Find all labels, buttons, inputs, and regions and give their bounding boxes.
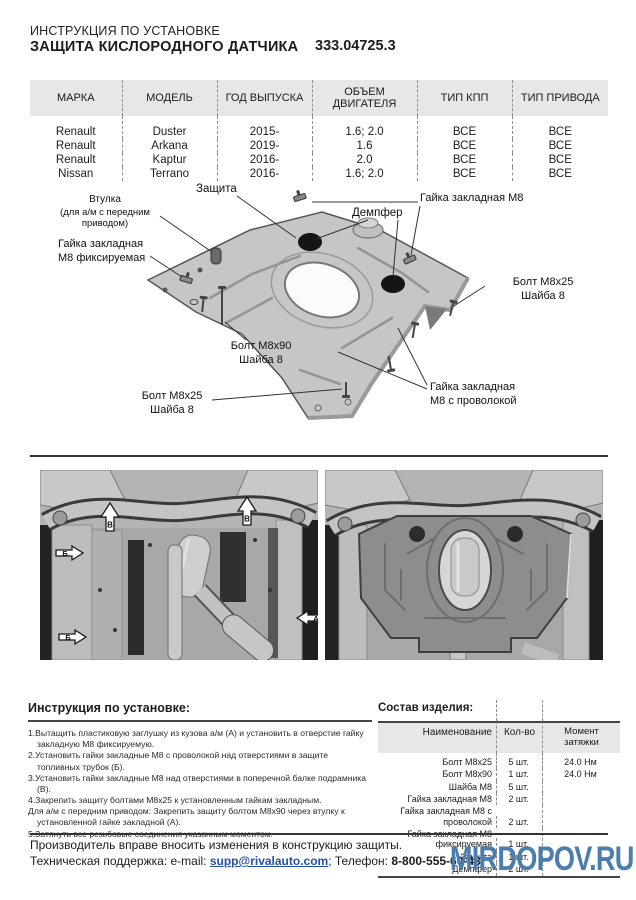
cell-brand: Renault: [30, 139, 122, 153]
photo-underbody-before: В В Б Б А: [40, 470, 318, 660]
support-line: Техническая поддержка: e-mail: supp@riva…: [30, 854, 481, 868]
part-qty: 1 шт.: [496, 768, 542, 780]
support-label: Техническая поддержка: e-mail:: [30, 854, 210, 868]
install-step: Для а/м с передним приводом: Закрепить з…: [28, 806, 372, 828]
vehicle-row: Renault Kaptur 2016- 2.0 ВСЕ ВСЕ: [30, 153, 608, 167]
label-shield: Защита: [196, 182, 237, 196]
part-qty: 5 шт.: [496, 781, 542, 793]
part-name: Болт М8х25: [378, 753, 496, 768]
cell-year: 2016-: [217, 153, 312, 167]
svg-text:В: В: [244, 515, 250, 524]
label-bushing: Втулка (для а/м с передним приводом): [38, 194, 172, 230]
label-nut-wire: Гайка закладная М8 с проволокой: [430, 381, 517, 409]
part-torque: [542, 781, 620, 793]
cell-brand: Renault: [30, 116, 122, 139]
doc-subtitle: ИНСТРУКЦИЯ ПО УСТАНОВКЕ: [30, 24, 220, 38]
label-nut-fixed-line2: М8 фиксируемая: [58, 252, 145, 266]
install-title: Инструкция по установке:: [28, 701, 372, 722]
cell-gearbox: ВСЕ: [417, 139, 512, 153]
col-gearbox: ТИП КПП: [417, 80, 512, 116]
vehicle-row: Renault Duster 2015- 1.6; 2.0 ВСЕ ВСЕ: [30, 116, 608, 139]
phone-label: ; Телефон:: [328, 854, 391, 868]
col-year: ГОД ВЫПУСКА: [217, 80, 312, 116]
vehicle-table-header-row: МАРКА МОДЕЛЬ ГОД ВЫПУСКА ОБЪЕМ ДВИГАТЕЛЯ…: [30, 80, 608, 116]
label-nut-wire-line1: Гайка закладная: [430, 381, 515, 393]
part-qty: 5 шт.: [496, 753, 542, 768]
parts-title-spacer: [542, 700, 620, 721]
svg-text:Б: Б: [62, 549, 68, 558]
install-step: 2.Установить гайки закладные М8 с провол…: [28, 750, 372, 772]
cell-gearbox: ВСЕ: [417, 153, 512, 167]
cell-year: 2015-: [217, 116, 312, 139]
doc-title: ЗАЩИТА КИСЛОРОДНОГО ДАТЧИКА: [30, 39, 298, 55]
cell-drive: ВСЕ: [512, 139, 608, 153]
label-washer90-line2: Шайба 8: [222, 354, 300, 368]
cell-model: Duster: [122, 116, 217, 139]
svg-text:Б: Б: [65, 633, 71, 642]
cell-model: Kaptur: [122, 153, 217, 167]
manufacturer-note: Производитель вправе вносить изменения в…: [30, 838, 402, 852]
damper-right: [381, 275, 405, 293]
install-step: 1.Вытащить пластиковую заглушку из кузов…: [28, 728, 372, 750]
part-name: Шайба М8: [378, 781, 496, 793]
col-engine: ОБЪЕМ ДВИГАТЕЛЯ: [312, 80, 417, 116]
label-washerb-line2: Шайба 8: [132, 404, 212, 418]
cell-drive: ВСЕ: [512, 116, 608, 139]
part-number: 333.04725.3: [315, 38, 396, 54]
section-divider: [30, 455, 608, 457]
watermark: MIRDOPOV.RU: [450, 840, 634, 879]
part-name: Гайка закладная М8: [378, 793, 496, 805]
cell-model: Arkana: [122, 139, 217, 153]
cell-gearbox: ВСЕ: [417, 116, 512, 139]
part-qty: 2 шт.: [496, 816, 542, 828]
label-bolt-m8x25-right: Болт М8х25 Шайба 8: [487, 276, 599, 304]
col-brand: МАРКА: [30, 80, 122, 116]
vehicle-table: МАРКА МОДЕЛЬ ГОД ВЫПУСКА ОБЪЕМ ДВИГАТЕЛЯ…: [30, 80, 608, 181]
install-step: 4.Закрепить защиту болтами М8х25 к устан…: [28, 795, 372, 806]
cell-engine: 1.6: [312, 139, 417, 153]
support-email-link[interactable]: supp@rivalauto.com: [210, 854, 328, 868]
label-nut-fixed-line1: Гайка закладная: [58, 238, 143, 250]
label-bushing-line2: (для а/м с передним приводом): [38, 207, 172, 231]
nut-m8-top: [292, 189, 307, 202]
part-name: Гайка закладная М8 с проволокой: [378, 805, 496, 828]
label-nut-m8: Гайка закладная М8: [420, 192, 523, 206]
label-nut-wire-line2: М8 с проволокой: [430, 395, 517, 409]
parts-title-spacer: [496, 700, 542, 721]
parts-col-qty: Кол-во: [496, 721, 542, 753]
part-torque: 24.0 Нм: [542, 753, 620, 768]
label-bolt90-line1: Болт М8х90: [231, 340, 292, 352]
install-step: 3.Установить гайки закладные М8 над отве…: [28, 773, 372, 795]
part-qty: 2 шт.: [496, 793, 542, 805]
part-name: Болт М8х90: [378, 768, 496, 780]
parts-col-name: Наименование: [378, 721, 496, 753]
svg-text:В: В: [107, 521, 113, 530]
exploded-diagram: Защита Втулка (для а/м с передним привод…: [0, 178, 636, 455]
label-nut-fixed: Гайка закладная М8 фиксируемая: [58, 238, 145, 266]
damper-left: [298, 233, 322, 251]
vehicle-row: Renault Arkana 2019- 1.6 ВСЕ ВСЕ: [30, 139, 608, 153]
cell-engine: 2.0: [312, 153, 417, 167]
label-bolt-line1: Болт М8х25: [513, 276, 574, 288]
cell-brand: Renault: [30, 153, 122, 167]
photo-underbody-after: [325, 470, 603, 660]
label-bolt-m8x25-bottom: Болт М8х25 Шайба 8: [132, 390, 212, 418]
cell-engine: 1.6; 2.0: [312, 116, 417, 139]
parts-col-torque: Момент затяжки: [542, 721, 620, 753]
label-bolt-m8x90: Болт М8х90 Шайба 8: [222, 340, 300, 368]
col-model: МОДЕЛЬ: [122, 80, 217, 116]
part-torque: [542, 805, 620, 828]
label-damper: Демпфер: [352, 206, 403, 220]
part-torque: [542, 793, 620, 805]
svg-text:А: А: [313, 614, 318, 623]
cell-year: 2019-: [217, 139, 312, 153]
col-drive: ТИП ПРИВОДА: [512, 80, 608, 116]
label-boltb-line1: Болт М8х25: [142, 390, 203, 402]
parts-title: Состав изделия:: [378, 700, 496, 721]
label-washer-line2: Шайба 8: [487, 290, 599, 304]
footer-divider: [30, 833, 608, 835]
part-torque: 24.0 Нм: [542, 768, 620, 780]
install-instructions: Инструкция по установке: 1.Вытащить плас…: [28, 701, 372, 840]
instruction-page: ИНСТРУКЦИЯ ПО УСТАНОВКЕ ЗАЩИТА КИСЛОРОДН…: [0, 0, 636, 900]
cell-drive: ВСЕ: [512, 153, 608, 167]
label-bushing-line1: Втулка: [89, 194, 121, 205]
bushing-part: [211, 248, 221, 264]
